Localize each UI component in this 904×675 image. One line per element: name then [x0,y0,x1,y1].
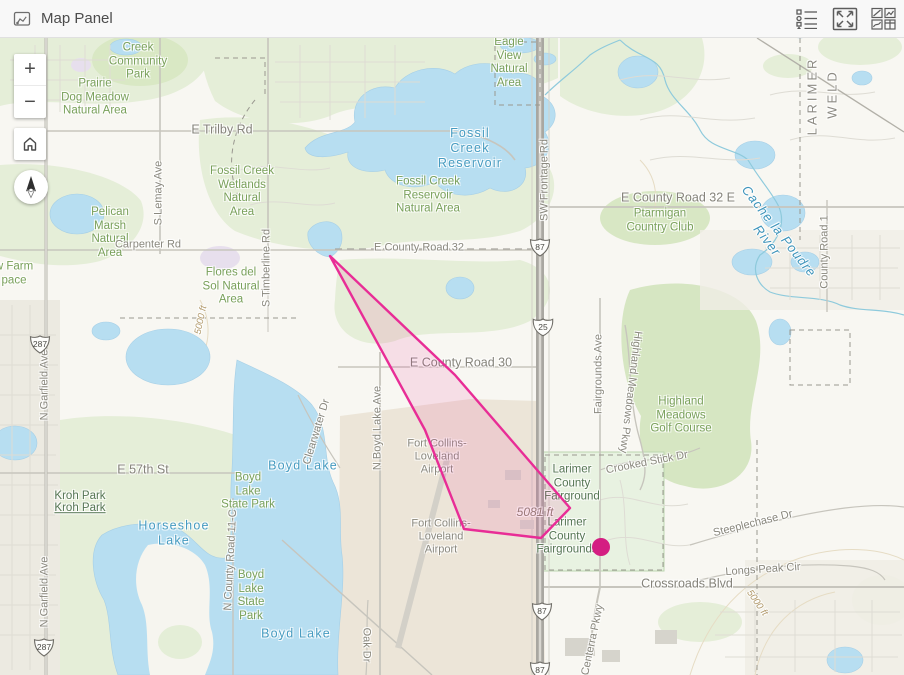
panels-icon[interactable] [868,4,898,34]
map-panel-icon [13,10,31,28]
basemap [0,38,904,675]
compass-button[interactable] [14,170,48,204]
map-panel-widget: Map Panel [0,0,904,675]
compass-needle-icon [18,174,44,200]
panel-header: Map Panel [0,0,904,38]
panel-title: Map Panel [41,10,113,27]
home-icon [20,134,40,154]
expand-icon[interactable] [830,4,860,34]
legend-icon[interactable] [792,4,822,34]
map-controls: + − [14,54,46,204]
home-button[interactable] [14,128,46,160]
zoom-out-button[interactable]: − [14,86,46,118]
map-canvas[interactable]: Creek Community ParkPrairie Dog Meadow N… [0,38,904,675]
zoom-in-button[interactable]: + [14,54,46,86]
